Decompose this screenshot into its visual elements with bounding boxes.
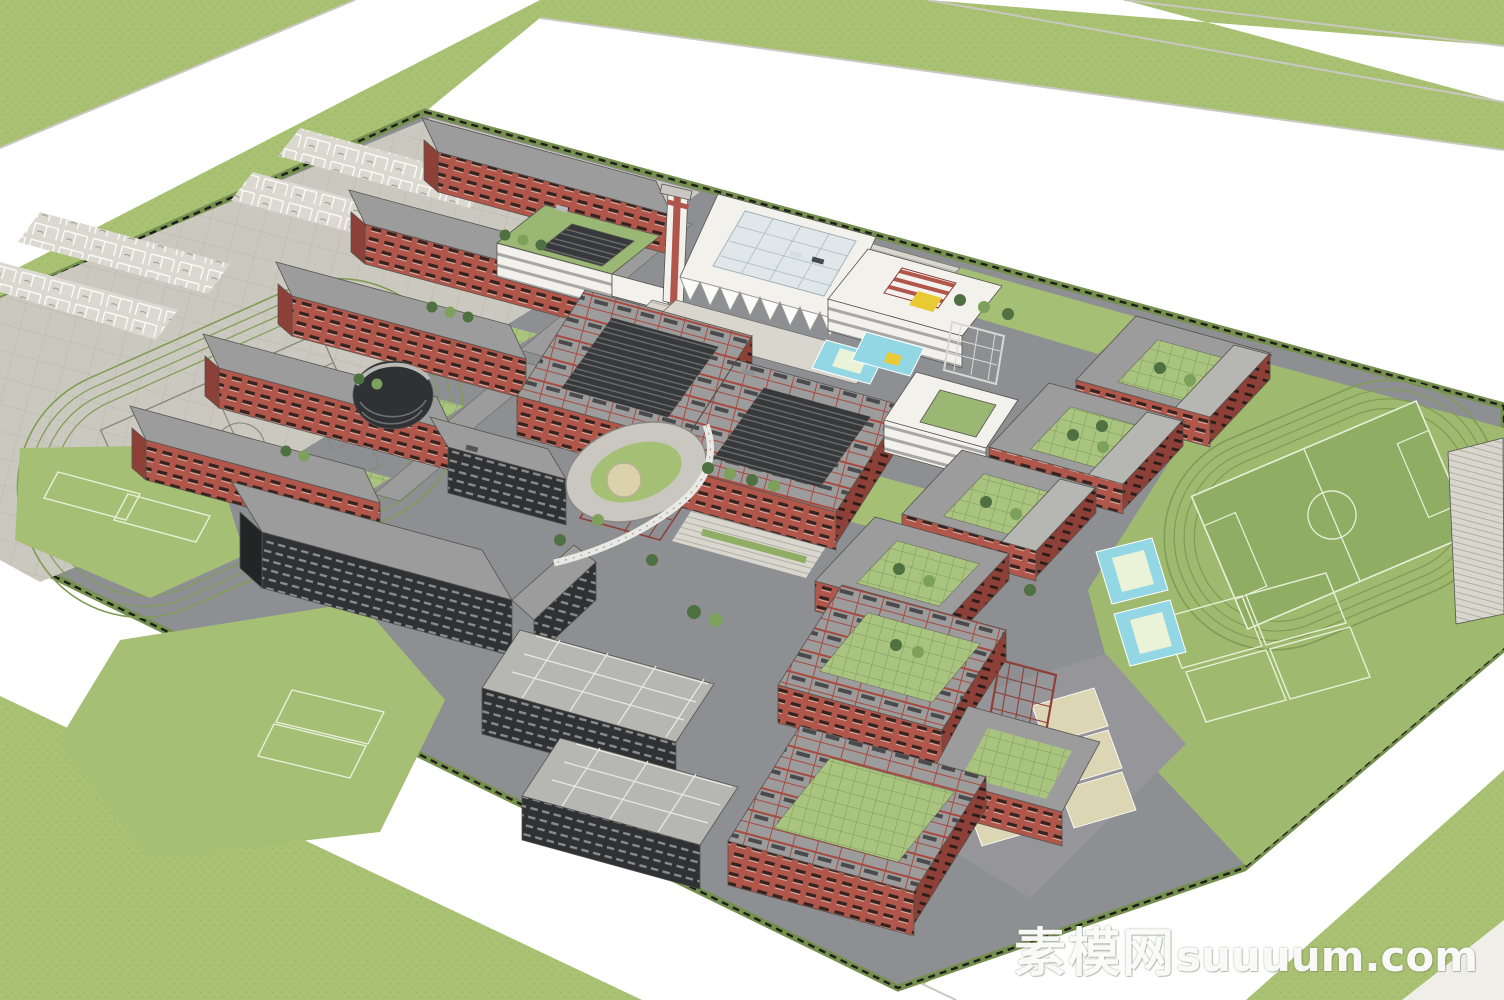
watermark: 素模网suuuum.com (1014, 911, 1478, 986)
watermark-site-name: 素模网 (1014, 924, 1176, 984)
grandstand (1448, 438, 1504, 624)
campus-render: 素模网suuuum.com (0, 0, 1504, 1000)
watermark-domain: suuuum.com (1176, 932, 1478, 981)
round-lecture-hall (353, 361, 433, 429)
campus-scene (0, 0, 1504, 1000)
